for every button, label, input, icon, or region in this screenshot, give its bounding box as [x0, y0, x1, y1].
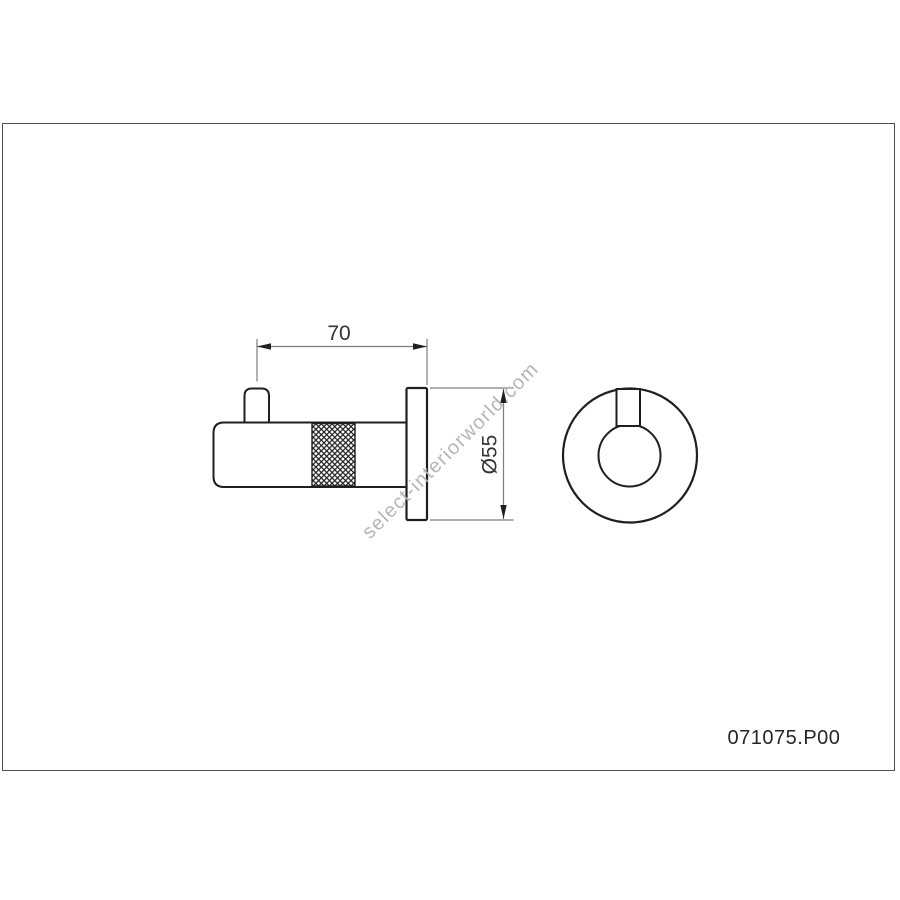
arrowhead-left	[257, 343, 271, 350]
front-view	[563, 389, 697, 523]
arrowhead-right	[413, 343, 427, 350]
wall-plate-side	[407, 388, 428, 520]
knurl-section	[312, 424, 355, 487]
side-view	[214, 388, 428, 520]
technical-drawing-svg: 70 Ø55	[0, 0, 900, 900]
hook-body	[214, 423, 408, 488]
part-number: 071075.P00	[684, 727, 884, 750]
hook-peg-front	[617, 389, 641, 426]
dim-label-70: 70	[327, 322, 350, 345]
hook-peg-side	[245, 389, 270, 425]
arrowhead-down	[500, 505, 506, 519]
dim-label-diameter: Ø55	[479, 435, 502, 475]
dimension-projection	[257, 339, 427, 385]
hook-body-front-circle	[599, 425, 661, 487]
arrowhead-up	[500, 389, 506, 403]
drawing-canvas: 70 Ø55 select-interiorworld.com 071075.P…	[0, 0, 900, 900]
